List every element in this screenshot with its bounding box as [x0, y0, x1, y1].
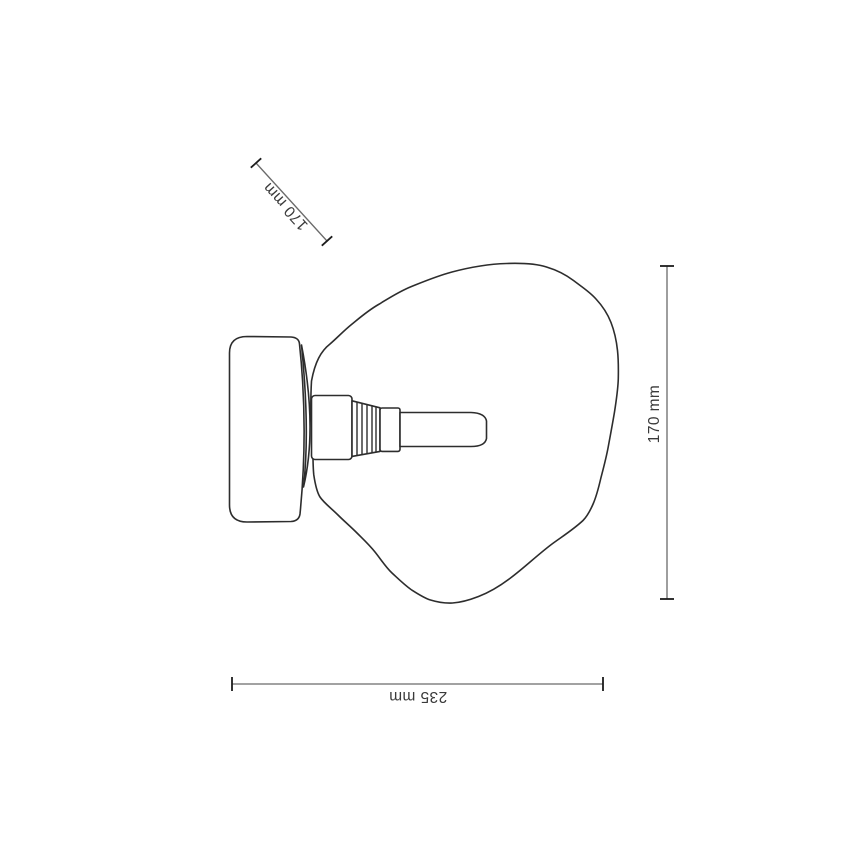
wall-lamp-drawing: [230, 263, 619, 603]
dimension-depth-diagonal: 170 mm: [251, 158, 332, 245]
dimension-label: 170 mm: [646, 385, 663, 443]
socket-body: [312, 396, 353, 460]
dimension-label: 170 mm: [260, 179, 312, 234]
dimension-label: 235 mm: [389, 688, 447, 705]
mount-canopy: [230, 337, 305, 523]
socket-collar: [380, 408, 400, 451]
dimension-height-vertical: 170 mm: [646, 266, 674, 599]
bulb-tube: [400, 413, 487, 447]
wall-lamp-dimension-diagram: 170 mm 170 mm 235 mm: [0, 0, 868, 868]
dimension-width-horizontal: 235 mm: [232, 677, 603, 705]
diagram-canvas: 170 mm 170 mm 235 mm: [0, 0, 868, 868]
